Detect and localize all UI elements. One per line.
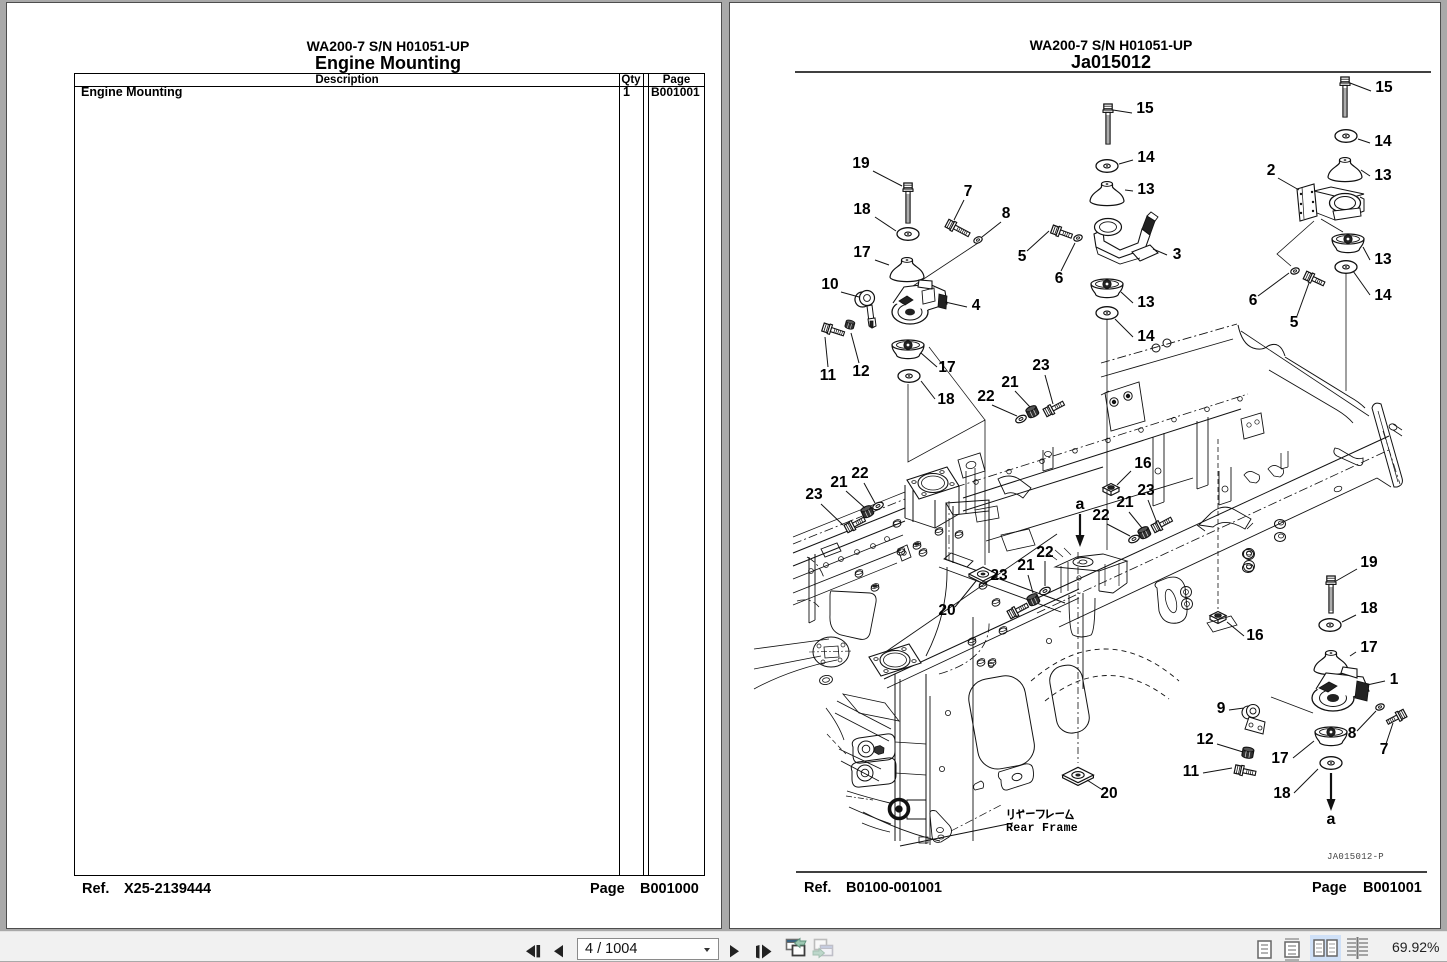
svg-text:19: 19 [1360, 554, 1378, 571]
svg-text:11: 11 [820, 367, 837, 384]
svg-text:WA200-7 S/N H01051-UP: WA200-7 S/N H01051-UP [1030, 37, 1193, 53]
svg-text:Ja015012: Ja015012 [1071, 52, 1151, 72]
svg-text:5: 5 [1018, 248, 1027, 265]
svg-text:14: 14 [1137, 328, 1155, 345]
svg-text:17: 17 [1271, 750, 1288, 767]
svg-text:9: 9 [1217, 700, 1226, 717]
svg-text:a: a [1327, 811, 1336, 828]
svg-text:17: 17 [853, 244, 870, 261]
svg-text:13: 13 [1137, 181, 1155, 198]
svg-text:16: 16 [1134, 455, 1152, 472]
svg-text:18: 18 [1273, 785, 1291, 802]
svg-text:2: 2 [1267, 162, 1276, 179]
svg-text:11: 11 [1183, 763, 1200, 780]
svg-text:20: 20 [938, 602, 955, 619]
svg-text:15: 15 [1375, 79, 1393, 96]
svg-text:13: 13 [1137, 294, 1155, 311]
svg-text:14: 14 [1374, 133, 1392, 150]
svg-text:10: 10 [821, 276, 838, 293]
svg-text:B001001: B001001 [1363, 880, 1422, 896]
svg-text:22: 22 [1092, 507, 1109, 524]
svg-text:14: 14 [1374, 287, 1392, 304]
svg-text:18: 18 [937, 391, 955, 408]
svg-text:a: a [1076, 496, 1085, 513]
svg-text:19: 19 [852, 155, 870, 172]
svg-text:16: 16 [1246, 627, 1264, 644]
svg-text:22: 22 [851, 465, 868, 482]
svg-text:21: 21 [1001, 374, 1019, 391]
svg-text:23: 23 [1137, 482, 1155, 499]
svg-text:12: 12 [1196, 731, 1213, 748]
svg-text:20: 20 [1100, 785, 1117, 802]
svg-text:Page: Page [1312, 880, 1347, 896]
svg-text:17: 17 [1360, 639, 1377, 656]
svg-text:13: 13 [1374, 167, 1392, 184]
svg-text:23: 23 [990, 567, 1008, 584]
svg-text:6: 6 [1055, 270, 1064, 287]
svg-text:23: 23 [805, 486, 823, 503]
svg-text:JA015012-P: JA015012-P [1327, 852, 1384, 862]
svg-text:1: 1 [1390, 671, 1399, 688]
svg-text:7: 7 [964, 183, 973, 200]
svg-text:5: 5 [1290, 314, 1299, 331]
svg-text:B0100-001001: B0100-001001 [846, 880, 942, 896]
svg-text:15: 15 [1136, 100, 1154, 117]
svg-text:Rear Frame: Rear Frame [1006, 822, 1078, 835]
svg-text:18: 18 [853, 201, 871, 218]
svg-text:22: 22 [1036, 544, 1053, 561]
svg-text:22: 22 [977, 388, 994, 405]
svg-text:18: 18 [1360, 600, 1378, 617]
svg-text:14: 14 [1137, 149, 1155, 166]
svg-text:8: 8 [1002, 205, 1011, 222]
svg-text:3: 3 [1173, 246, 1182, 263]
svg-text:6: 6 [1249, 292, 1258, 309]
svg-text:17: 17 [938, 359, 955, 376]
svg-text:Ref.: Ref. [804, 880, 831, 896]
svg-text:13: 13 [1374, 251, 1392, 268]
svg-text:7: 7 [1380, 741, 1389, 758]
svg-text:12: 12 [852, 363, 869, 380]
svg-text:21: 21 [1017, 557, 1035, 574]
svg-text:21: 21 [1116, 494, 1134, 511]
svg-text:21: 21 [830, 474, 848, 491]
svg-text:23: 23 [1032, 357, 1050, 374]
svg-text:4: 4 [972, 297, 981, 314]
svg-text:8: 8 [1348, 725, 1357, 742]
